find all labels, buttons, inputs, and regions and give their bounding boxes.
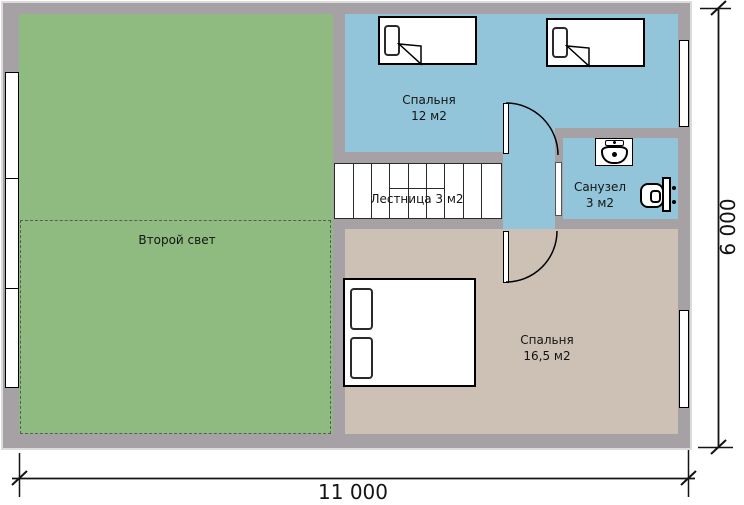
room-area: 12 м2 — [402, 108, 455, 124]
pillow-icon — [552, 27, 568, 58]
single-bed-icon — [546, 18, 645, 67]
dimension-width-label: 11 000 — [318, 480, 388, 504]
room-label-second-light: Второй свет — [138, 232, 215, 248]
dimension-tick — [12, 471, 27, 485]
toilet-cistern — [662, 177, 671, 212]
toilet-icon — [640, 183, 664, 208]
room-name: Санузел — [574, 179, 626, 195]
stair-landing-line — [389, 188, 444, 189]
room-label-bathroom: Санузел 3 м2 — [574, 179, 626, 211]
sink-tap-dot — [613, 141, 616, 144]
dimension-tick — [681, 471, 696, 485]
room-label-bedroom-small: Спальня 12 м2 — [402, 92, 455, 124]
window-icon-left — [5, 72, 19, 388]
window-icon-right-bottom — [679, 310, 689, 408]
dimension-tick — [711, 1, 726, 15]
stair-step-line — [481, 164, 482, 218]
floor-void-dashed-outline — [20, 220, 331, 434]
window-icon-right-top — [679, 40, 689, 127]
sink-icon — [595, 138, 633, 166]
room-label-bedroom-large: Спальня 16,5 м2 — [520, 332, 573, 364]
stair-step-line — [353, 164, 354, 218]
dimension-height-label: 6 000 — [716, 198, 740, 255]
single-bed-icon — [378, 16, 477, 65]
toilet-dot — [672, 186, 676, 190]
double-bed-icon — [343, 278, 476, 387]
window-divider — [6, 178, 18, 179]
pillow-icon — [384, 25, 400, 56]
room-area: 3 м2 — [574, 195, 626, 211]
room-bedroom-small-ext — [345, 128, 555, 152]
toilet-dot — [672, 200, 676, 204]
room-name: Спальня — [402, 92, 455, 108]
corridor — [503, 152, 555, 229]
room-area: 16,5 м2 — [520, 348, 573, 364]
pillow-icon — [350, 337, 373, 379]
toilet-seat — [650, 190, 661, 203]
room-name: Спальня — [520, 332, 573, 348]
door-leaf-bedroom-small — [503, 103, 509, 154]
pillow-icon — [350, 288, 373, 330]
dimension-tick — [711, 440, 726, 454]
door-leaf-bathroom — [555, 162, 562, 216]
door-leaf-bedroom-large — [503, 231, 509, 283]
window-divider — [6, 288, 18, 289]
floor-plan: Второй свет Спальня 12 м2 Лестница 3 м2 … — [0, 0, 744, 505]
room-label-staircase: Лестница 3 м2 — [370, 191, 463, 207]
sink-drain-dot — [612, 152, 617, 157]
